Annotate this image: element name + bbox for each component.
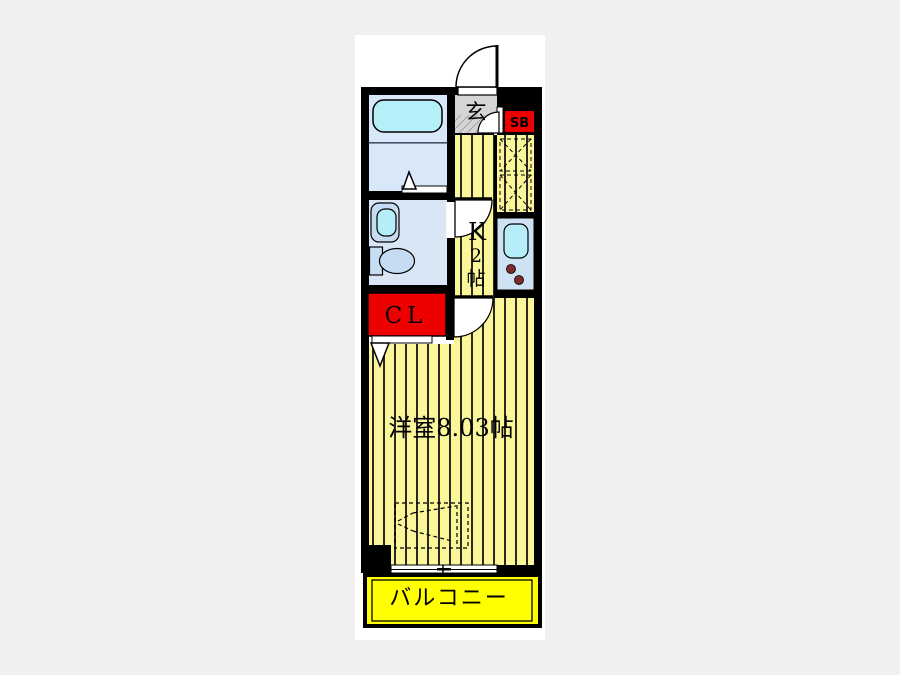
main-room-floor-left [369, 344, 454, 565]
kitchen-label-jo: 帖 [466, 268, 485, 290]
kitchen-sink [504, 224, 528, 258]
floorplan-drawing: 玄 SB K 2 帖 CL 洋室8.03帖 バルコニー [355, 35, 545, 640]
stove-burner-2 [515, 276, 524, 285]
bathtub [373, 100, 442, 132]
entrance-door-swing [456, 46, 497, 87]
wall-closet-right [446, 285, 454, 340]
wall-vertical-center [447, 95, 455, 298]
wall-bottom-right [497, 565, 542, 573]
main-room-label: 洋室8.03帖 [388, 414, 513, 442]
wall-right [534, 130, 542, 573]
balcony-label: バルコニー [389, 586, 509, 611]
stove-burner-1 [507, 265, 516, 274]
closet-label: CL [385, 303, 428, 329]
toilet-bowl [380, 249, 415, 274]
wall-wash-closet-divider [369, 285, 448, 293]
wall-below-counter [494, 290, 542, 298]
fridge-space-floor [497, 135, 534, 212]
wall-top-left [361, 87, 458, 95]
entrance-opening [458, 87, 497, 95]
bathroom-step-line [369, 142, 447, 144]
closet-door-track [372, 336, 432, 343]
floorplan-canvas: 玄 SB K 2 帖 CL 洋室8.03帖 バルコニー [355, 35, 545, 640]
shoe-box-label: SB [510, 116, 529, 131]
kitchen-label-k: K [468, 218, 487, 246]
kitchen-label-2: 2 [470, 245, 482, 267]
entrance-label: 玄 [466, 100, 487, 124]
balcony-window-latch [437, 568, 451, 571]
vanity-basin [377, 209, 396, 236]
screenshot-stage: 玄 SB K 2 帖 CL 洋室8.03帖 バルコニー [0, 0, 900, 675]
wall-pillar-bottom-left [361, 545, 391, 573]
wall-fridge-kitchen-divider [497, 212, 534, 218]
